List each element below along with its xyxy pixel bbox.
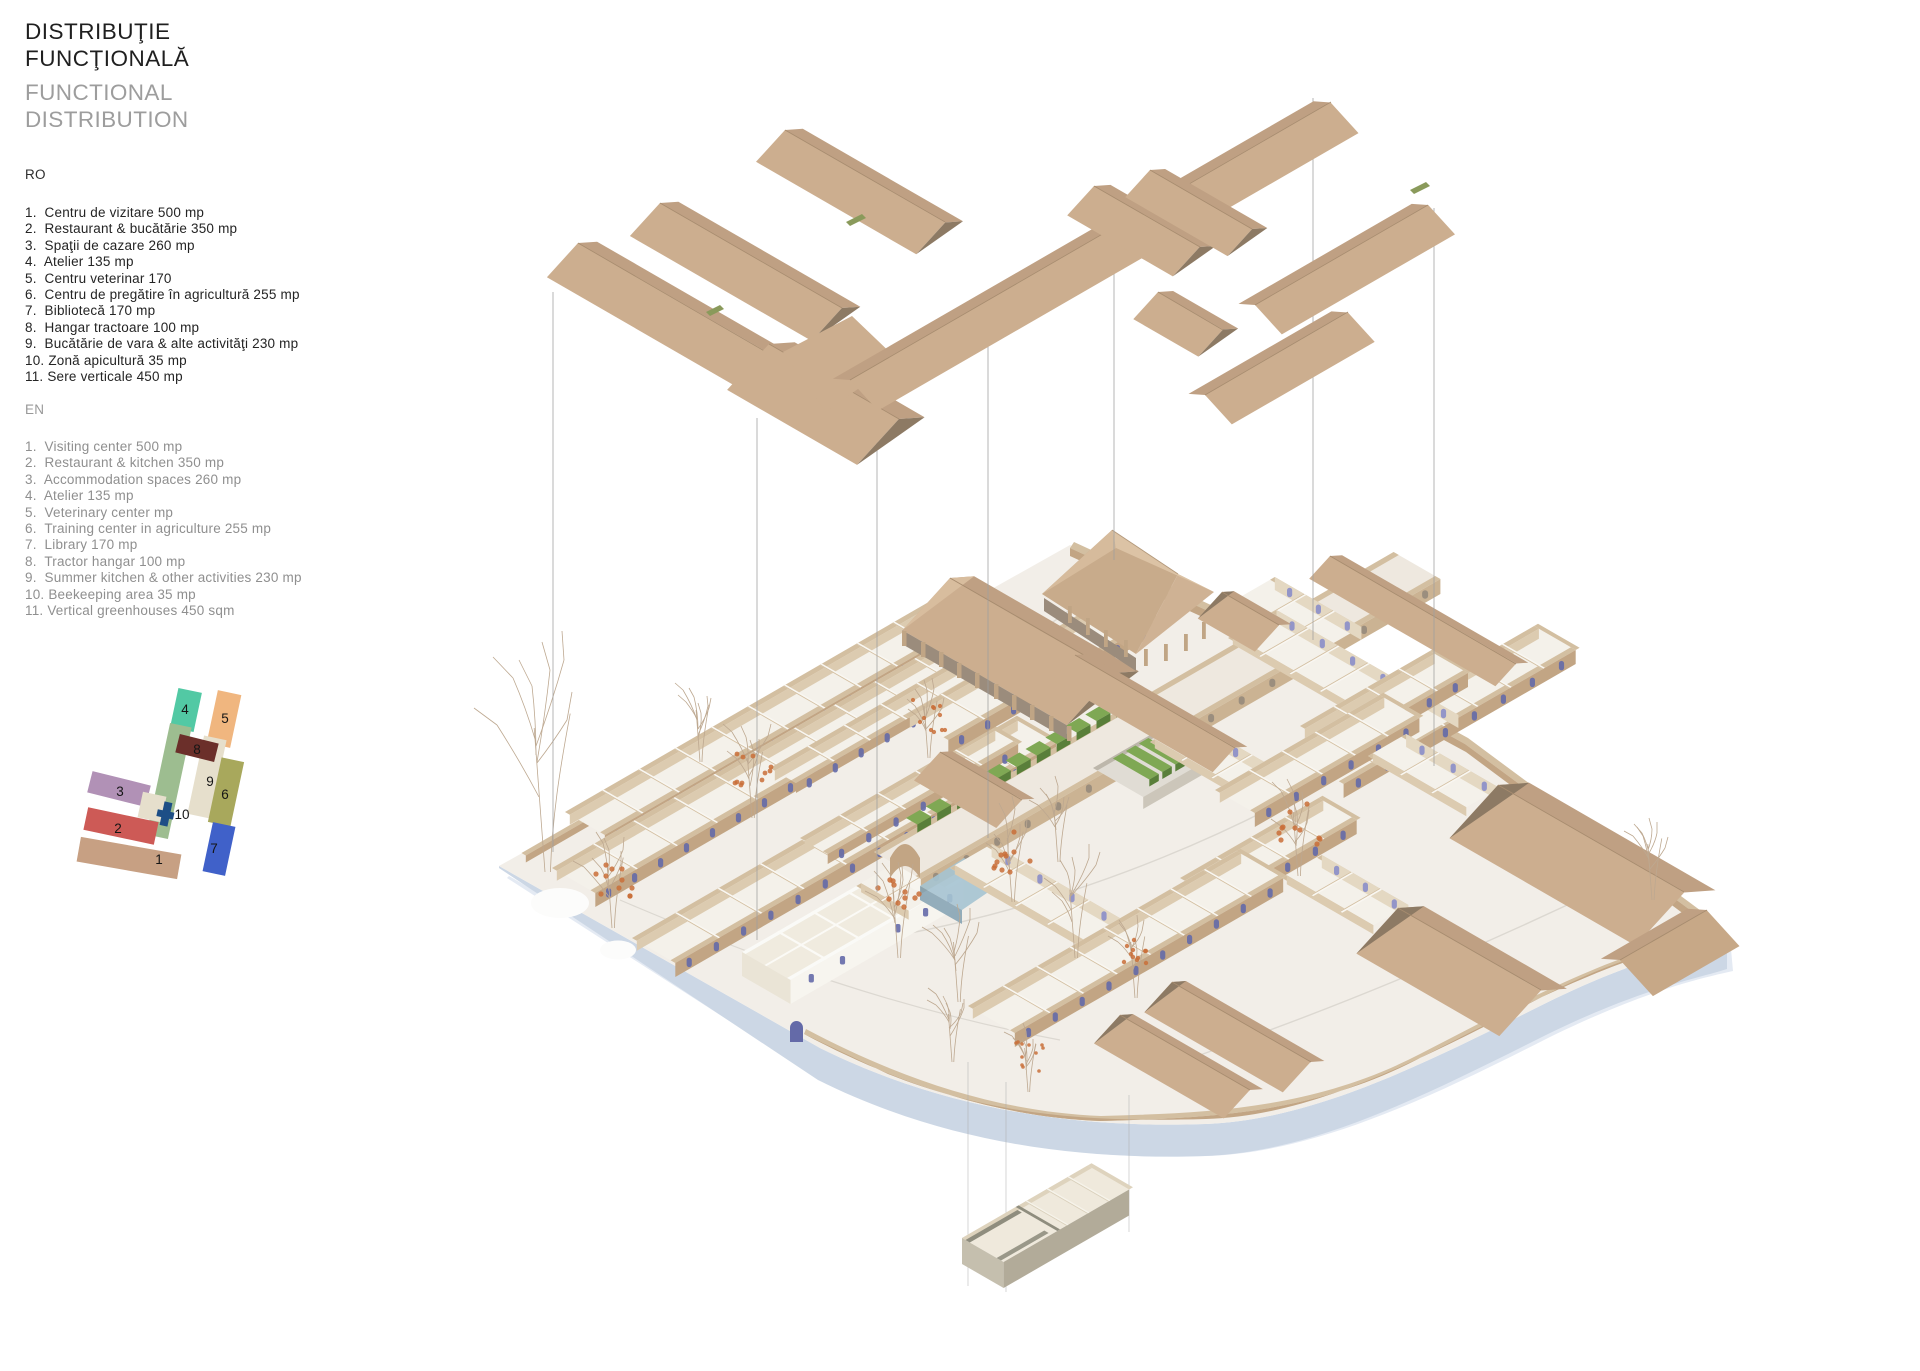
svg-text:8: 8 <box>193 742 201 757</box>
svg-text:3: 3 <box>116 784 124 799</box>
svg-text:7: 7 <box>210 841 218 856</box>
svg-text:5: 5 <box>221 711 229 726</box>
svg-text:10: 10 <box>174 807 189 822</box>
svg-text:9: 9 <box>206 774 214 789</box>
svg-text:1: 1 <box>155 852 163 867</box>
svg-text:2: 2 <box>114 821 122 836</box>
svg-text:6: 6 <box>221 787 229 802</box>
svg-text:4: 4 <box>181 702 189 717</box>
